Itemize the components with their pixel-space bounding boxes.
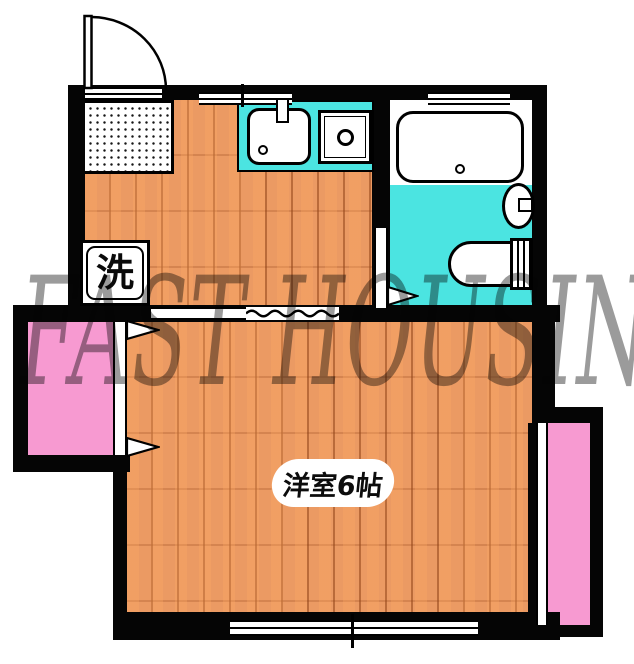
bathtub bbox=[396, 111, 524, 183]
closet-door-swing-top-icon bbox=[127, 319, 160, 341]
stove-burner-icon bbox=[337, 129, 354, 146]
closet-door-swing-bottom-icon bbox=[127, 436, 160, 458]
main-right-wall bbox=[532, 322, 555, 414]
washbasin-faucet-icon bbox=[518, 198, 533, 212]
genkan-entry-tile bbox=[82, 100, 174, 174]
lower-left-outer-wall bbox=[13, 305, 28, 472]
accordion-door bbox=[246, 307, 339, 320]
balcony-sliding-door bbox=[536, 423, 548, 625]
accordion-wave-icon bbox=[246, 307, 339, 320]
balcony-right-wall bbox=[590, 407, 603, 637]
bathtub-drain-icon bbox=[455, 164, 465, 174]
kitchen-faucet-icon bbox=[276, 98, 289, 123]
main-room-label: 洋室6帖 bbox=[269, 459, 396, 507]
toilet-bowl bbox=[448, 241, 514, 287]
bottom-window-tick bbox=[351, 614, 354, 648]
entrance-door-icon bbox=[83, 14, 169, 92]
balcony-bottom-wall bbox=[528, 625, 603, 637]
sink-drain-icon bbox=[258, 145, 268, 155]
stove-unit bbox=[318, 110, 372, 164]
bathroom-door-opening bbox=[374, 228, 388, 308]
bathroom-door-swing-icon bbox=[388, 285, 419, 307]
closet-floor bbox=[28, 322, 113, 455]
closet-door-strip bbox=[113, 322, 127, 455]
kitchen-window-tick bbox=[241, 84, 244, 107]
floor-plan: 洗 洋室6帖 FAST HOUSING bbox=[0, 0, 634, 664]
bottom-window bbox=[230, 620, 478, 636]
bathroom-window bbox=[428, 92, 510, 105]
toilet-tank bbox=[510, 238, 533, 290]
balcony-floor bbox=[548, 423, 590, 625]
washer-frame bbox=[86, 246, 144, 300]
room-opening-threshold bbox=[151, 307, 246, 320]
washing-machine: 洗 bbox=[80, 240, 150, 306]
balcony-left-thin-wall bbox=[528, 423, 536, 625]
